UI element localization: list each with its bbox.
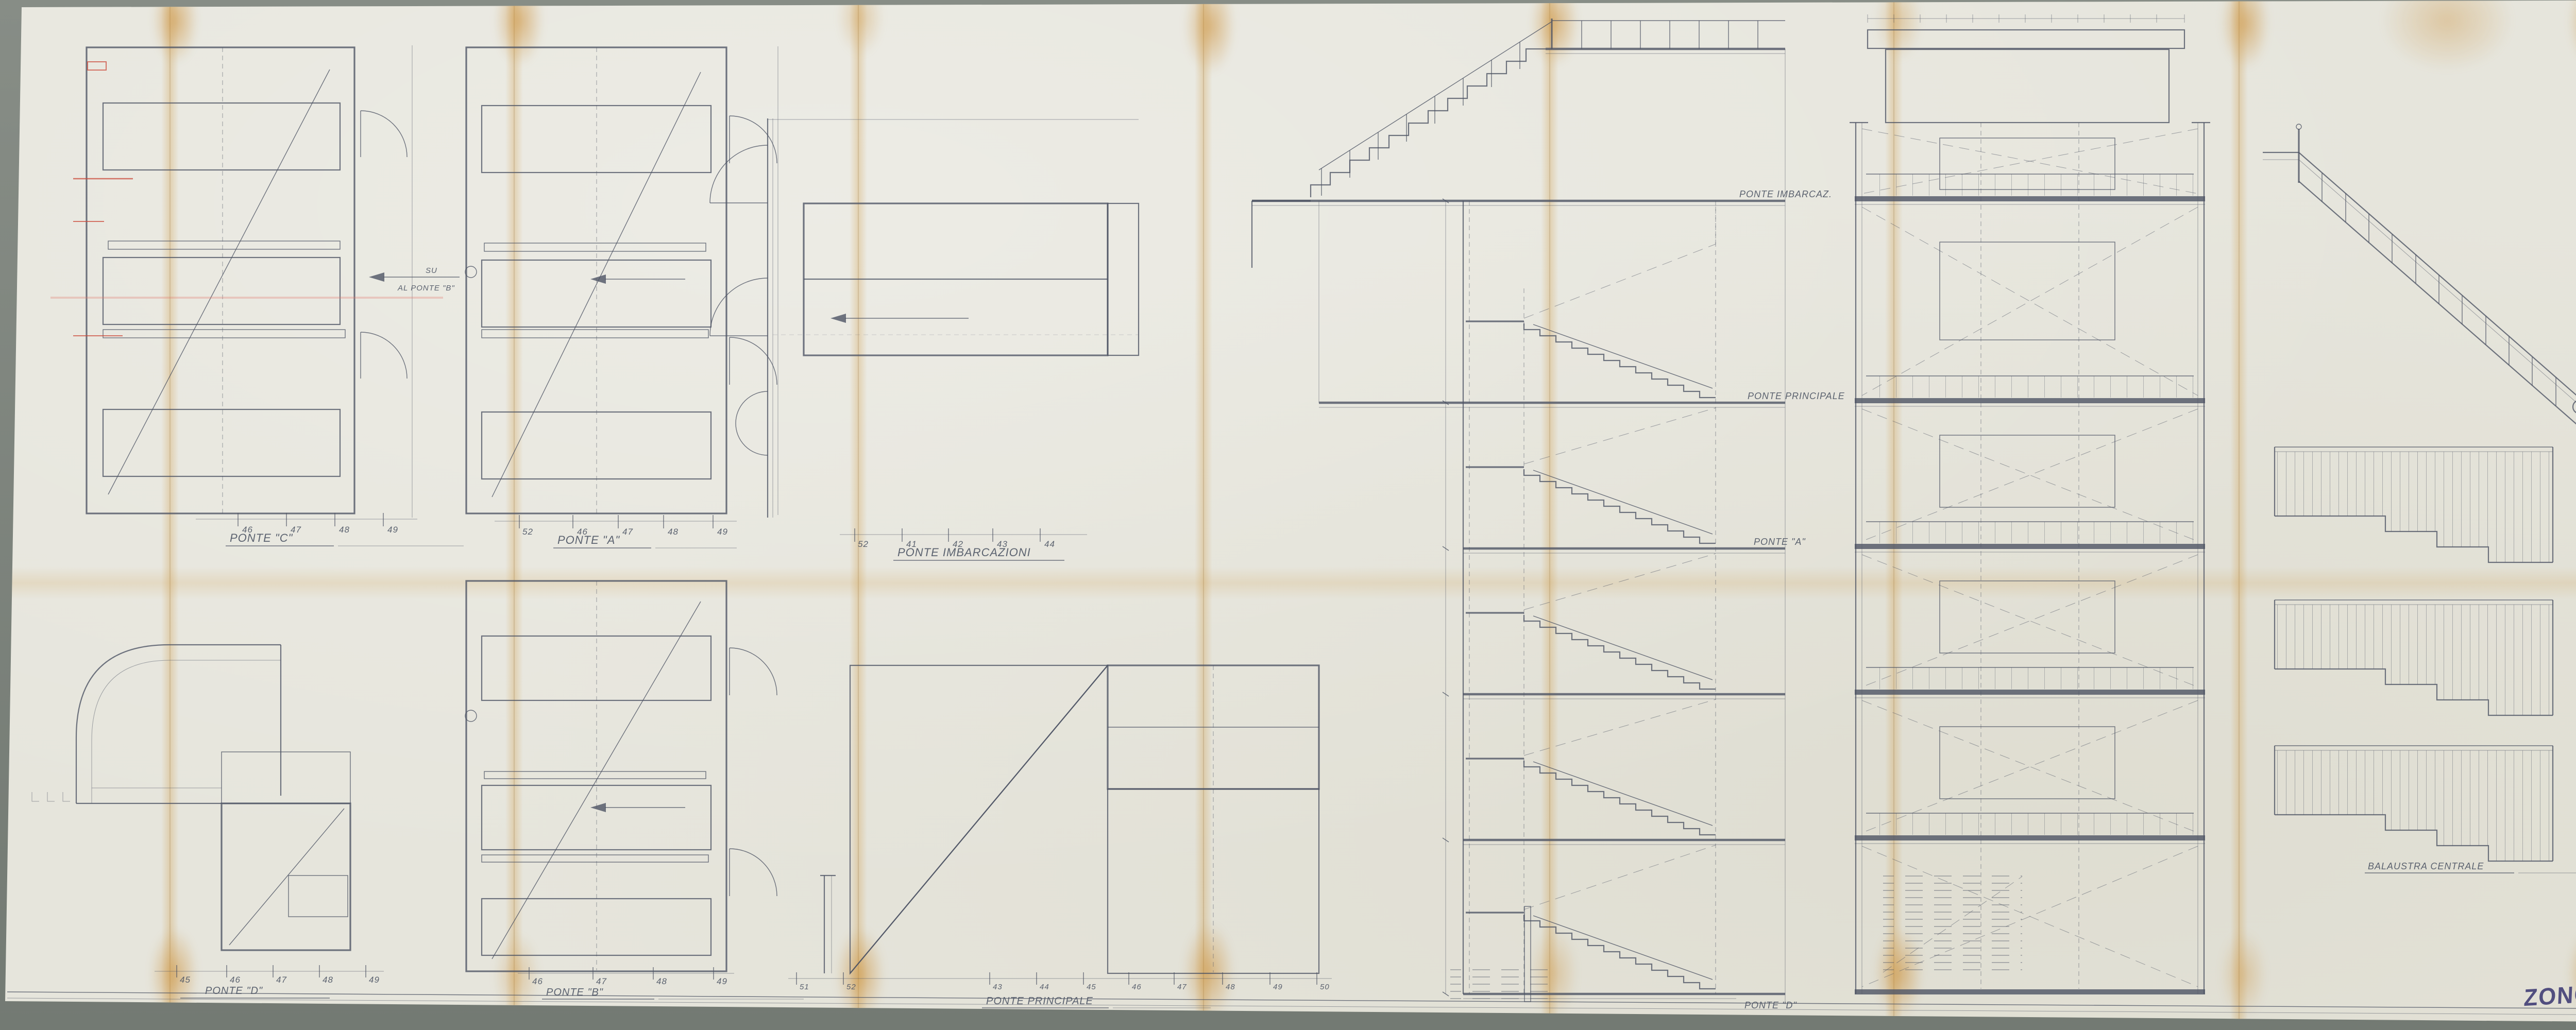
- deck-label-d: PONTE "D": [1744, 1000, 1797, 1010]
- deck-label-principale: PONTE PRINCIPALE: [1748, 391, 1845, 401]
- station-number: 49: [717, 976, 727, 986]
- note-destination: AL PONTE "B": [397, 284, 455, 293]
- stair-front-elevation: [1850, 14, 2210, 994]
- station-number: 49: [369, 975, 380, 985]
- plan-ponte-b: 46 47 48 49 PONTE "B": [465, 581, 804, 999]
- direction-arrow: [369, 272, 384, 282]
- deck-label-a: PONTE "A": [1754, 537, 1806, 547]
- station-number: 43: [993, 983, 1003, 991]
- plan-ponte-imbarcazioni: 52 41 42 43 44 PONTE IMBARCAZIONI: [710, 118, 1139, 560]
- station-number: 47: [596, 976, 607, 986]
- station-number: 49: [717, 527, 728, 537]
- station-number: 48: [339, 525, 350, 535]
- drawing-sheet: SU AL PONTE "B" 46 47 48 49 PONTE "C": [0, 0, 2576, 1030]
- station-number: 51: [800, 983, 809, 991]
- plan-ponte-d: 45 46 47 48 49 PONTE "D": [32, 645, 384, 998]
- plan-label: PONTE "B": [546, 987, 603, 998]
- balustrade-views: BALAUSTRA CENTRALE 7 G 14: [2263, 124, 2576, 873]
- sheet-border: [7, 992, 2576, 1016]
- station-number: 44: [1044, 539, 1055, 549]
- note-su: SU: [426, 266, 437, 275]
- station-number: 52: [858, 539, 869, 549]
- station-number: 44: [1040, 983, 1049, 991]
- station-number: 46: [532, 976, 543, 986]
- station-number: 45: [1087, 983, 1096, 991]
- station-number: 48: [668, 527, 679, 537]
- plan-ponte-principale: 51 52 43 44 45 46 47 48 49 50 PONTE PRIN…: [788, 665, 1332, 1008]
- balaustra-label: BALAUSTRA CENTRALE: [2368, 861, 2484, 871]
- station-number: 50: [1320, 983, 1330, 991]
- station-number: 48: [323, 975, 333, 985]
- scanned-drawing-board: SU AL PONTE "B" 46 47 48 49 PONTE "C": [0, 0, 2576, 1030]
- station-number: 49: [387, 525, 398, 535]
- plan-ponte-a: 52 46 47 48 49 PONTE "A": [465, 46, 778, 548]
- plan-label: PONTE "C": [230, 531, 293, 544]
- station-number: 47: [1177, 983, 1187, 991]
- plan-label: PONTE "A": [557, 534, 620, 546]
- station-number: 47: [276, 975, 287, 985]
- station-number: 46: [230, 975, 241, 985]
- station-number: 52: [846, 983, 856, 991]
- plan-ponte-c: SU AL PONTE "B" 46 47 48 49 PONTE "C": [50, 45, 464, 546]
- station-number: 46: [1132, 983, 1142, 991]
- station-number: 48: [1226, 983, 1235, 991]
- station-number: 47: [622, 527, 633, 537]
- plan-label: PONTE IMBARCAZIONI: [897, 546, 1031, 559]
- station-number: 48: [656, 976, 667, 986]
- plan-label: PONTE PRINCIPALE: [986, 995, 1093, 1007]
- station-number: 49: [1273, 983, 1283, 991]
- station-number: 45: [180, 975, 191, 985]
- deck-label-imbarcazioni: PONTE IMBARCAZ.: [1739, 189, 1832, 199]
- station-number: 52: [522, 527, 533, 537]
- linework-canvas: SU AL PONTE "B" 46 47 48 49 PONTE "C": [0, 0, 2576, 1030]
- plan-label: PONTE "D": [205, 985, 263, 997]
- stair-section: PONTE IMBARCAZ. PONTE PRINCIPALE PONTE "…: [1252, 19, 1845, 1010]
